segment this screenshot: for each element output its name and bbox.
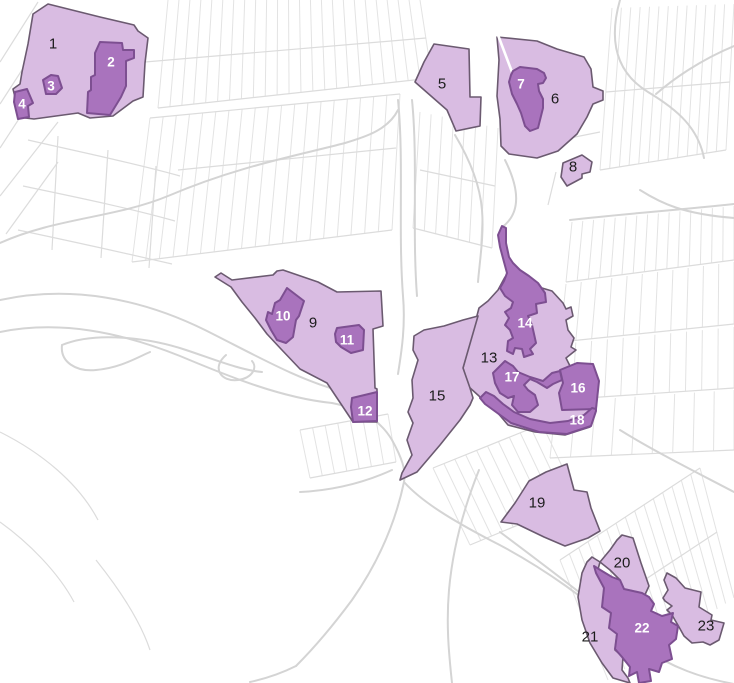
parcel-line [611,218,615,276]
parcel-line [300,430,310,478]
road-path [62,337,262,372]
road-path [640,190,734,218]
zone-label-4: 4 [18,97,26,112]
parcel-line [182,0,190,105]
parcel-line [691,474,726,603]
parcel-line [655,272,658,332]
zone-polygon-5[interactable] [415,44,481,131]
parcel-boundary [28,140,180,176]
zone-label-16: 16 [570,381,586,396]
parcel-line [173,114,189,257]
parcel-line [313,428,323,476]
zone-label-11: 11 [340,333,355,348]
parcel-line [265,0,266,96]
parcel-line [648,6,658,162]
road-path [455,135,483,282]
parcel-line [685,332,686,392]
parcel-line [678,6,688,158]
parcel-line [592,280,597,339]
zone-label-7: 7 [517,77,525,92]
zone-label-20: 20 [614,555,631,572]
zone-label-10: 10 [275,309,290,324]
zone-label-3: 3 [47,79,55,94]
road-path [296,482,404,666]
parcel-line [600,8,612,170]
parcel-line [321,0,324,90]
parcel-boundary [6,162,58,234]
zone-label-9: 9 [309,315,317,332]
parcel-boundary [548,172,556,205]
parcel-boundary [550,450,734,458]
parcel-boundary [413,228,492,248]
parcel-line [299,0,300,92]
parcel-line [289,0,290,94]
parcel-line [652,395,655,453]
zone-label-19: 19 [529,495,546,512]
parcel-line [310,102,321,241]
parcel-line [170,0,179,107]
road-path [250,666,296,682]
parcel-line [656,213,659,270]
parcel-boundary [150,94,400,118]
parcel-line [354,0,360,86]
parcel-line [633,216,637,274]
parcel-line [338,423,347,471]
zone-label-1: 1 [49,36,57,53]
parcel-boundary [96,560,150,650]
zone-label-23: 23 [698,618,715,635]
parcel-line [702,266,703,327]
parcel-line [678,211,680,267]
parcel-line [689,210,691,266]
road-path [412,100,417,296]
parcel-line [363,419,372,467]
zone-label-21: 21 [582,629,599,646]
parcel-line [577,221,583,281]
road-path [398,100,404,374]
zone-label-15: 15 [429,388,446,405]
parcel-line [693,393,694,452]
parcel-boundary [0,522,74,602]
parcel-line [644,215,647,272]
parcel-line [492,128,498,248]
parcel-line [447,119,454,237]
parcel-line [600,219,605,278]
parcel-line [637,336,639,394]
zone-label-6: 6 [551,91,559,108]
parcel-line [658,6,668,161]
parcel-boundary [149,166,156,268]
parcel-line [702,330,703,390]
zone-label-2: 2 [107,55,115,70]
parcel-line [458,121,464,239]
parcel-line [576,282,581,340]
road-path [570,204,734,220]
parcel-line [253,0,255,98]
parcel-line [669,333,670,392]
parcel-boundary [310,462,396,478]
parcel-line [324,100,335,238]
zone-label-5: 5 [438,76,446,93]
parcel-line [607,278,611,337]
parcel-line [605,339,608,396]
parcel-line [343,0,348,87]
parcel-line [255,107,268,247]
parcel-line [623,276,627,335]
parcel-line [611,398,615,455]
zone-label-18: 18 [569,413,585,428]
parcel-line [700,468,734,598]
parcel-line [639,274,642,334]
parcel-line [194,0,201,104]
zone-label-8: 8 [569,159,577,176]
parcel-line [632,397,635,455]
parcel-line [283,104,295,243]
parcel-boundary [600,150,726,170]
parcel-line [622,217,626,275]
map-canvas: 1234567891011121314151617181920212223 [0,0,734,683]
parcel-line [653,335,655,394]
parcel-line [707,5,716,153]
zone-label-14: 14 [517,316,533,331]
parcel-line [726,4,734,150]
road-path [501,160,516,228]
parcel-boundary [0,432,98,520]
parcel-line [325,425,334,473]
parcel-line [351,98,361,235]
parcel-line [621,338,624,396]
parcel-line [206,0,212,103]
zone-polygon-19[interactable] [501,464,600,546]
parcel-line [214,110,229,251]
parcel-line [388,414,396,462]
cadastral-zone-map: 1234567891011121314151617181920212223 [0,0,734,683]
zone-label-12: 12 [357,404,372,419]
parcel-line [350,421,359,469]
road-path [62,345,150,370]
road-path [300,470,392,492]
parcel-line [673,394,675,453]
parcel-line [159,115,176,258]
parcel-line [310,0,312,91]
parcel-line [667,212,669,268]
parcel-line [365,97,374,234]
parcel-line [241,108,255,249]
zone-label-17: 17 [504,370,519,385]
parcel-boundary [560,324,734,342]
parcel-line [697,5,706,155]
parcel-boundary [0,122,58,196]
parcel-line [566,222,572,282]
parcel-line [718,264,719,326]
parcel-line [296,103,308,242]
parcel-line [228,109,242,250]
zone-label-13: 13 [481,350,498,367]
road-path [448,470,479,683]
parcel-line [337,99,347,237]
parcel-line [588,220,593,279]
parcel-line [469,123,475,242]
zone-label-22: 22 [634,621,649,636]
parcel-boundary [566,260,734,282]
parcel-line [378,95,387,231]
parcel-line [229,0,233,100]
parcel-line [241,0,244,99]
parcel-line [687,268,689,329]
parcel-line [332,0,336,88]
parcel-line [619,7,630,167]
parcel-line [700,209,701,264]
parcel-line [671,270,673,331]
parcel-line [158,0,168,108]
parcel-line [269,105,282,245]
parcel-line [218,0,223,101]
parcel-boundary [132,230,392,262]
parcel-line [716,4,724,151]
parcel-line [639,7,650,164]
parcel-line [714,391,715,451]
parcel-line [132,118,150,262]
